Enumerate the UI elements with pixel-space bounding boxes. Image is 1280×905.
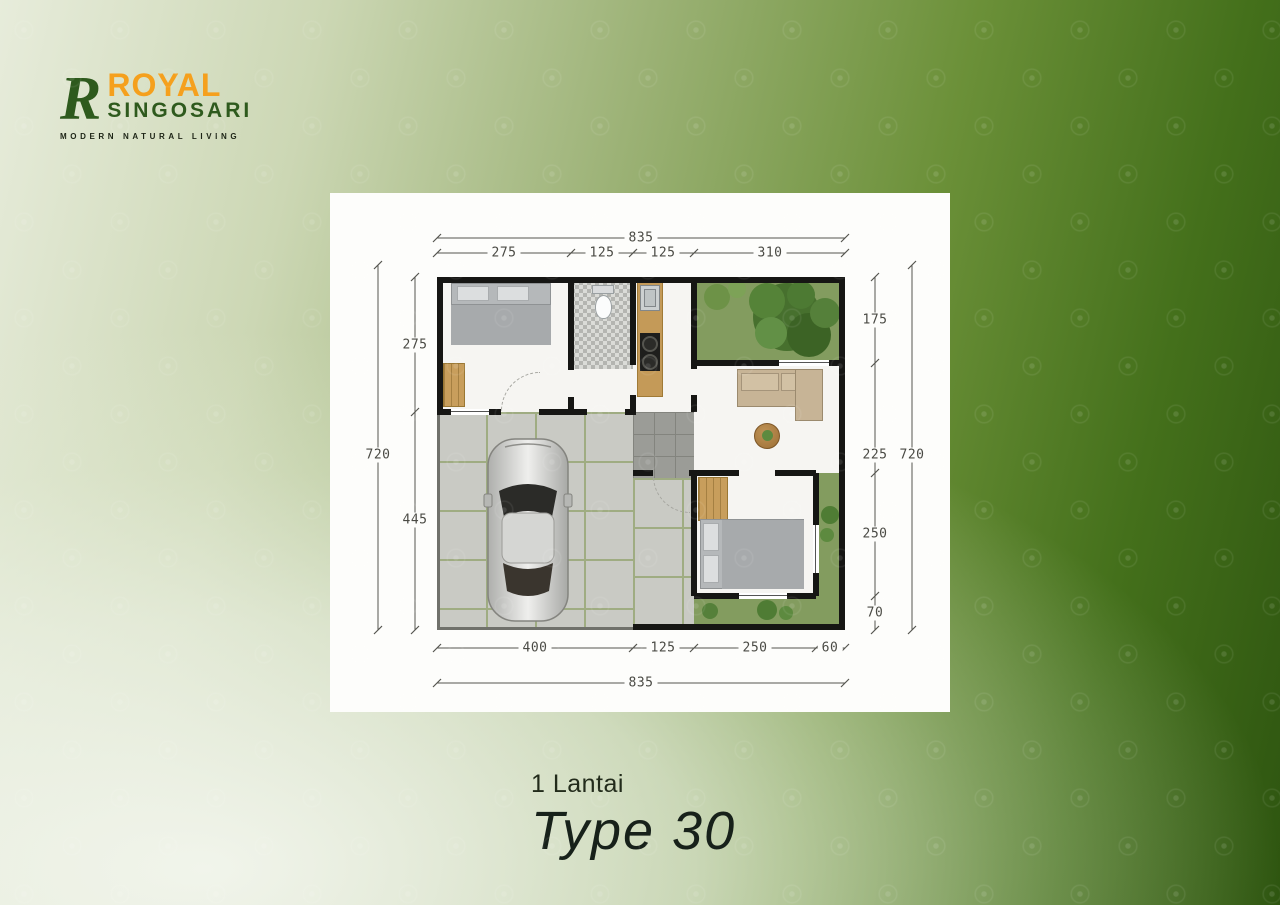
room-carport (437, 412, 633, 630)
dim-right-outer-total: 720 (896, 448, 929, 463)
terrace (633, 412, 694, 478)
kitchen-stove (640, 333, 660, 371)
dim-bottom-total: 835 (625, 676, 658, 691)
wall-segment (694, 593, 739, 599)
dim-right-seg-2: 225 (859, 448, 892, 463)
wall-segment (633, 624, 845, 630)
logo-name-singosari: SINGOSARI (107, 100, 252, 122)
wall-segment (829, 360, 845, 366)
sofa-cushion (741, 373, 779, 391)
bed-1-pillow (497, 286, 529, 301)
bed-1-blanket (451, 304, 551, 345)
caption: 1 Lantai Type 30 (531, 770, 736, 861)
window (813, 525, 819, 573)
wardrobe-2 (698, 477, 728, 521)
wardrobe-1 (443, 363, 465, 407)
window (779, 360, 829, 366)
toilet-icon (595, 295, 612, 319)
table-plant-icon (762, 430, 773, 441)
wall-segment (437, 277, 845, 283)
wall-segment (691, 395, 697, 412)
dim-right-seg-3: 250 (859, 527, 892, 542)
logo-monogram: R (60, 70, 99, 128)
brand-logo: R ROYAL SINGOSARI MODERN NATURAL LIVING (60, 70, 252, 141)
floorplan-panel: 835 275 125 125 310 400 125 250 60 835 7… (330, 193, 950, 712)
wall-segment (630, 277, 636, 365)
wall-segment (437, 277, 443, 415)
dim-bottom-seg-2: 125 (647, 641, 680, 656)
wall-segment (839, 277, 845, 630)
bed-2-pillow (703, 555, 719, 583)
dim-top-seg-2: 125 (586, 246, 619, 261)
dim-left-seg-2: 445 (399, 513, 432, 528)
wall-segment (691, 473, 697, 596)
window (451, 409, 489, 415)
floorplan-drawing (437, 277, 845, 630)
wall-segment (625, 409, 636, 415)
kitchen-sink (640, 285, 660, 311)
bed-2-blanket (722, 519, 804, 589)
wall-segment (775, 470, 816, 476)
caption-type: Type 30 (531, 801, 736, 861)
wall-segment (633, 470, 653, 476)
dim-bottom-seg-4: 60 (818, 641, 843, 656)
dim-bottom-seg-3: 250 (739, 641, 772, 656)
wall-segment (813, 473, 819, 525)
bed-2-pillow (703, 523, 719, 551)
room-garden (694, 277, 845, 363)
carport-edge (437, 627, 633, 630)
dim-right-seg-1: 175 (859, 313, 892, 328)
wall-segment (694, 360, 779, 366)
dim-top-total: 835 (625, 231, 658, 246)
caption-floors: 1 Lantai (531, 770, 736, 799)
dim-left-seg-1: 275 (399, 338, 432, 353)
dim-right-seg-4: 70 (863, 606, 888, 621)
dim-top-seg-1: 275 (488, 246, 521, 261)
sofa-chaise (795, 369, 823, 421)
dim-top-seg-4: 310 (754, 246, 787, 261)
logo-name-royal: ROYAL (107, 70, 252, 100)
toilet-tank (592, 285, 614, 294)
wall-segment (539, 409, 587, 415)
dim-bottom-seg-1: 400 (519, 641, 552, 656)
wall-segment (437, 409, 451, 415)
wall-segment (691, 277, 697, 369)
wall-segment (787, 593, 816, 599)
carport-edge (437, 415, 440, 630)
bed-1-pillow (457, 286, 489, 301)
dim-left-outer-total: 720 (362, 448, 395, 463)
logo-tagline: MODERN NATURAL LIVING (60, 132, 252, 141)
dim-top-seg-3: 125 (647, 246, 680, 261)
window (739, 593, 787, 599)
wall-segment (568, 277, 574, 370)
wall-segment (489, 409, 501, 415)
